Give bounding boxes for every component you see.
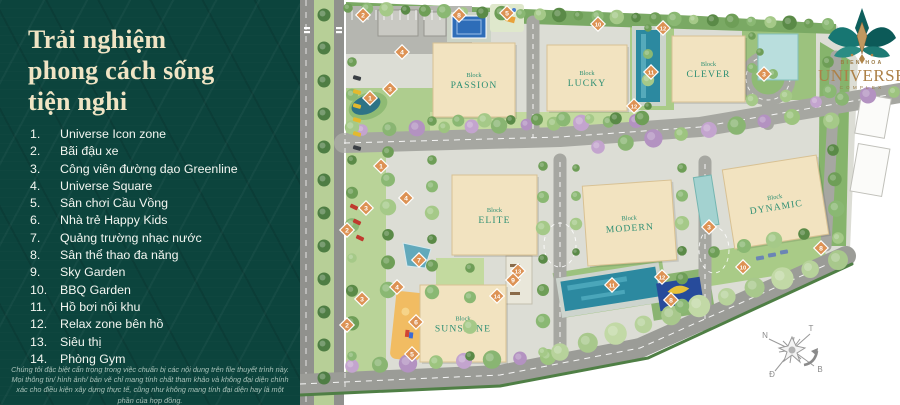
marker-number: 8 — [457, 12, 461, 19]
legend-item-label: Sân chơi Cầu Vồng — [60, 196, 168, 210]
block-label-word: Block — [466, 72, 482, 79]
tree-highlight — [345, 5, 349, 9]
tree-highlight — [454, 116, 459, 121]
tree-highlight — [349, 255, 353, 259]
tree-highlight — [549, 119, 555, 125]
legend-item-number: 13. — [30, 335, 60, 349]
tree-highlight — [812, 98, 817, 103]
median-tree-highlight — [320, 77, 326, 83]
legend-item-number: 14. — [30, 352, 60, 366]
marker-number: 2 — [345, 322, 349, 329]
logo-name: UNIVERSE — [818, 66, 900, 85]
tree-highlight — [760, 117, 766, 123]
legend-item: 7.Quảng trường nhạc nước — [30, 231, 292, 248]
tree-highlight — [605, 118, 610, 123]
tree-highlight — [645, 103, 648, 106]
legend-item: 10.BBQ Garden — [30, 283, 292, 300]
tree-highlight — [612, 12, 618, 18]
marker-number: 6 — [414, 319, 418, 326]
legend-item: 11.Hồ bơi nội khu — [30, 300, 292, 317]
tree-highlight — [538, 223, 544, 229]
tree-highlight — [786, 111, 793, 118]
tree-highlight — [349, 157, 353, 161]
marker-number: 2 — [361, 12, 365, 19]
legend-item: 13.Siêu thị — [30, 335, 292, 352]
tree-highlight — [831, 203, 838, 210]
tree-highlight — [554, 10, 560, 16]
tree-highlight — [517, 10, 521, 14]
median-tree-highlight — [320, 110, 326, 116]
legend-item-label: Sky Garden — [60, 265, 125, 279]
page-title: Trải nghiệmphong cách sốngtiện nghi — [0, 0, 300, 117]
logo-suffix: COMPLEX — [840, 85, 885, 90]
block-passion[interactable]: BlockPASSION — [433, 43, 517, 119]
legend-item-number: 1. — [30, 127, 60, 141]
tree-highlight — [748, 96, 754, 102]
legend-item-label: Quảng trường nhạc nước — [60, 231, 202, 245]
tree-highlight — [382, 284, 389, 291]
tree-highlight — [664, 308, 673, 317]
legend-item-label: Siêu thị — [60, 335, 101, 349]
legend-item: 4.Universe Square — [30, 179, 292, 196]
marker-number: 3 — [364, 205, 368, 212]
tree-highlight — [538, 316, 544, 322]
tree-highlight — [576, 117, 583, 124]
tree-highlight — [493, 120, 500, 127]
tree-highlight — [749, 33, 752, 36]
tree-highlight — [349, 353, 353, 357]
block-label-name: LUCKY — [568, 78, 607, 89]
legend-panel: Trải nghiệmphong cách sốngtiện nghi 1.Un… — [0, 0, 300, 405]
median-tree-highlight — [320, 11, 326, 17]
tree-highlight — [645, 51, 650, 56]
tree-highlight — [647, 132, 655, 140]
tree-highlight — [431, 357, 437, 363]
tree-highlight — [748, 18, 752, 22]
tree-highlight — [730, 119, 738, 127]
tree-highlight — [669, 14, 675, 20]
tree-highlight — [830, 175, 836, 181]
compass-label-đ: Đ — [769, 370, 775, 379]
tree-highlight — [467, 265, 471, 269]
tree-highlight — [805, 20, 809, 24]
legend-item: 5.Sân chơi Cầu Vồng — [30, 196, 292, 213]
block-label-word: Block — [487, 207, 503, 214]
compass-label-b: B — [817, 365, 822, 374]
tree-highlight — [458, 355, 465, 362]
tree-highlight — [575, 12, 579, 16]
tree-highlight — [782, 92, 788, 98]
block-elite[interactable]: BlockELITE — [452, 175, 539, 257]
marker-number: 11 — [648, 70, 655, 76]
tree-highlight — [348, 91, 353, 96]
tree-highlight — [383, 258, 389, 264]
tree-highlight — [554, 346, 562, 354]
legend-item: 9.Sky Garden — [30, 265, 292, 282]
tree-highlight — [515, 354, 521, 360]
tree-highlight — [384, 231, 389, 236]
compass-label-n: N — [762, 331, 768, 340]
legend-item: 2.Bãi đậu xe — [30, 144, 292, 161]
tree-highlight — [800, 230, 805, 235]
tree-highlight — [429, 157, 433, 161]
tree-highlight — [427, 208, 433, 214]
marker-number: 3 — [707, 224, 711, 231]
tree-highlight — [831, 253, 840, 262]
legend-item-number: 11. — [30, 300, 60, 314]
tree-highlight — [593, 142, 599, 148]
legend-item: 8.Sân thể thao đa năng — [30, 248, 292, 265]
legend-item-number: 7. — [30, 231, 60, 245]
median-tree-highlight — [320, 275, 326, 281]
marker-number: 3 — [762, 71, 766, 78]
legend-list: 1.Universe Icon zone2.Bãi đậu xe3.Công v… — [0, 127, 300, 369]
legend-item-number: 10. — [30, 283, 60, 297]
marker-number: 7 — [417, 257, 421, 264]
median-tree-highlight — [320, 341, 326, 347]
legend-item-label: Sân thể thao đa năng — [60, 248, 179, 262]
tree-highlight — [558, 114, 564, 120]
swimming-pool — [636, 30, 660, 102]
marker-number: 5 — [410, 351, 414, 358]
legend-item: 6.Nhà trẻ Happy Kids — [30, 213, 292, 230]
tree-highlight — [785, 18, 791, 24]
tree-highlight — [421, 6, 426, 11]
legend-item: 12.Relax zone bên hồ — [30, 317, 292, 334]
median-tree-highlight — [320, 242, 326, 248]
tree-highlight — [678, 274, 683, 279]
tree-highlight — [679, 247, 683, 251]
tree-highlight — [383, 175, 389, 181]
tree-highlight — [540, 349, 544, 353]
tree-highlight — [540, 256, 544, 260]
tree-highlight — [678, 191, 683, 196]
marker-number: 4 — [395, 284, 399, 291]
tree-highlight — [522, 121, 527, 126]
block-clever[interactable]: BlockCLEVER — [672, 36, 747, 104]
tree-highlight — [536, 10, 541, 15]
tree-highlight — [486, 353, 494, 361]
legend-item-label: Universe Icon zone — [60, 127, 166, 141]
block-label-name: ELITE — [478, 215, 510, 226]
tree-highlight — [691, 298, 701, 308]
tree-highlight — [637, 318, 645, 326]
tree-highlight — [381, 4, 387, 10]
legend-item-number: 8. — [30, 248, 60, 262]
tree-highlight — [645, 25, 648, 28]
marker-number: 4 — [400, 49, 404, 56]
legend-item-number: 12. — [30, 317, 60, 331]
legend-item-label: Bãi đậu xe — [60, 144, 119, 158]
tree-highlight — [572, 220, 578, 226]
marker-number: 12 — [631, 104, 637, 110]
tree-highlight — [427, 287, 433, 293]
tree-highlight — [633, 14, 637, 18]
tree-highlight — [721, 291, 729, 299]
marker-number: 10 — [740, 265, 746, 271]
legend-item-label: Phòng Gym — [60, 352, 125, 366]
marker-number: 2 — [345, 227, 349, 234]
legend-item-label: Nhà trẻ Happy Kids — [60, 213, 167, 227]
page-title-line: tiện nghi — [28, 86, 286, 117]
median-tree-highlight — [320, 374, 326, 380]
tree-highlight — [739, 241, 745, 247]
block-lucky[interactable]: BlockLUCKY — [547, 45, 629, 113]
tree-highlight — [826, 115, 833, 122]
tree-highlight — [727, 16, 733, 22]
median-tree-highlight — [320, 209, 326, 215]
tree-highlight — [710, 248, 715, 253]
block-label-word: Block — [701, 61, 717, 68]
tree-highlight — [348, 189, 353, 194]
tree-highlight — [467, 122, 473, 128]
page-title-line: phong cách sống — [28, 55, 286, 86]
legend-item-label: Relax zone bên hồ — [60, 317, 163, 331]
legend-item-number: 5. — [30, 196, 60, 210]
tree-highlight — [440, 123, 445, 128]
tree-highlight — [480, 115, 486, 121]
median-tree-highlight — [320, 44, 326, 50]
tree-highlight — [637, 113, 643, 119]
tree-highlight — [766, 18, 771, 23]
block-label-word: Block — [579, 70, 595, 77]
tree-highlight — [411, 122, 418, 129]
tree-highlight — [465, 322, 471, 328]
legend-item-label: Universe Square — [60, 179, 152, 193]
marker-number: 13 — [515, 269, 522, 275]
marker-number: 12 — [659, 275, 665, 281]
disclaimer-text: Chúng tôi đặc biệt cẩn trọng trong việc … — [9, 365, 291, 405]
marker-number: 8 — [819, 245, 823, 252]
tree-highlight — [573, 165, 576, 168]
compass-label-t: T — [809, 324, 814, 333]
legend-item-number: 9. — [30, 265, 60, 279]
marker-number: 9 — [511, 277, 515, 284]
tree-highlight — [573, 249, 576, 252]
site-plan-map: BlockPASSIONBlockLUCKYBlockCLEVERBlockEL… — [300, 0, 900, 405]
tree-highlight — [837, 94, 843, 100]
tree-highlight — [428, 261, 433, 266]
legend-item-label: Công viên đường dạo Greenline — [60, 162, 238, 176]
marker-number: 1 — [368, 95, 372, 102]
marker-number: 4 — [404, 195, 408, 202]
tree-highlight — [676, 129, 682, 135]
tree-highlight — [428, 182, 433, 187]
median-tree-highlight — [320, 308, 326, 314]
legend-item-label: Hồ bơi nội khu — [60, 300, 140, 314]
tree-highlight — [703, 124, 710, 131]
legend-item: 3.Công viên đường dạo Greenline — [30, 162, 292, 179]
tree-highlight — [768, 234, 775, 241]
tree-highlight — [862, 90, 869, 97]
legend-item-number: 2. — [30, 144, 60, 158]
tree-highlight — [748, 281, 757, 290]
tree-highlight — [804, 263, 812, 271]
marker-number: 12 — [660, 26, 666, 32]
tree-highlight — [757, 49, 760, 52]
legend-item-number: 6. — [30, 213, 60, 227]
tree-highlight — [677, 301, 683, 307]
tree-highlight — [466, 293, 471, 298]
marker-number: 3 — [360, 296, 364, 303]
tree-highlight — [374, 359, 381, 366]
legend-item-label: BBQ Garden — [60, 283, 131, 297]
tree-highlight — [775, 271, 785, 281]
tree-highlight — [890, 88, 895, 93]
tree-highlight — [540, 163, 544, 167]
tree-highlight — [829, 146, 834, 151]
median-tree-highlight — [320, 143, 326, 149]
tree-highlight — [507, 117, 511, 121]
tree-highlight — [478, 8, 483, 13]
tree-highlight — [347, 122, 353, 128]
legend-item-number: 4. — [30, 179, 60, 193]
page-title-line: Trải nghiệm — [28, 24, 286, 55]
tree-highlight — [402, 7, 406, 11]
marker-number: 10 — [595, 22, 601, 28]
tree-highlight — [348, 287, 353, 292]
tree-highlight — [749, 65, 754, 70]
tree-highlight — [679, 165, 683, 169]
block-label-name: PASSION — [451, 80, 498, 91]
tree-highlight — [347, 361, 353, 367]
block-label-word: Block — [621, 214, 638, 222]
tree-highlight — [824, 58, 829, 63]
block-modern[interactable]: BlockMODERN — [582, 180, 678, 268]
tree-highlight — [608, 326, 618, 336]
marker-number: 1 — [379, 163, 383, 170]
median-tree-highlight — [320, 176, 326, 182]
tree-highlight — [690, 16, 694, 20]
tree-highlight — [677, 218, 683, 224]
legend-item-number: 3. — [30, 162, 60, 176]
tree-highlight — [586, 115, 590, 119]
tree-highlight — [382, 201, 389, 208]
tree-highlight — [385, 124, 391, 130]
tree-highlight — [429, 236, 433, 240]
tree-highlight — [834, 234, 839, 239]
tree-highlight — [349, 59, 353, 63]
tree-highlight — [612, 114, 617, 119]
tree-highlight — [581, 336, 590, 345]
marker-number: 11 — [609, 283, 616, 289]
tree-highlight — [429, 118, 433, 122]
marker-number: 5 — [505, 10, 509, 17]
block-label-name: CLEVER — [687, 69, 731, 80]
tree-highlight — [620, 137, 627, 144]
marker-number: 8 — [669, 297, 673, 304]
tree-highlight — [539, 286, 544, 291]
tree-highlight — [709, 16, 714, 21]
tree-highlight — [573, 193, 578, 198]
tree-highlight — [825, 87, 831, 93]
tree-highlight — [467, 353, 471, 357]
tree-highlight — [384, 148, 389, 153]
tree-highlight — [651, 14, 656, 19]
marker-number: 14 — [494, 294, 501, 300]
tree-highlight — [439, 6, 445, 12]
page: Trải nghiệmphong cách sốngtiện nghi 1.Un… — [0, 0, 900, 405]
legend-item: 1.Universe Icon zone — [30, 127, 292, 144]
tree-highlight — [824, 20, 829, 25]
tree-highlight — [533, 115, 538, 120]
marker-number: 3 — [388, 86, 392, 93]
tree-highlight — [539, 193, 544, 198]
